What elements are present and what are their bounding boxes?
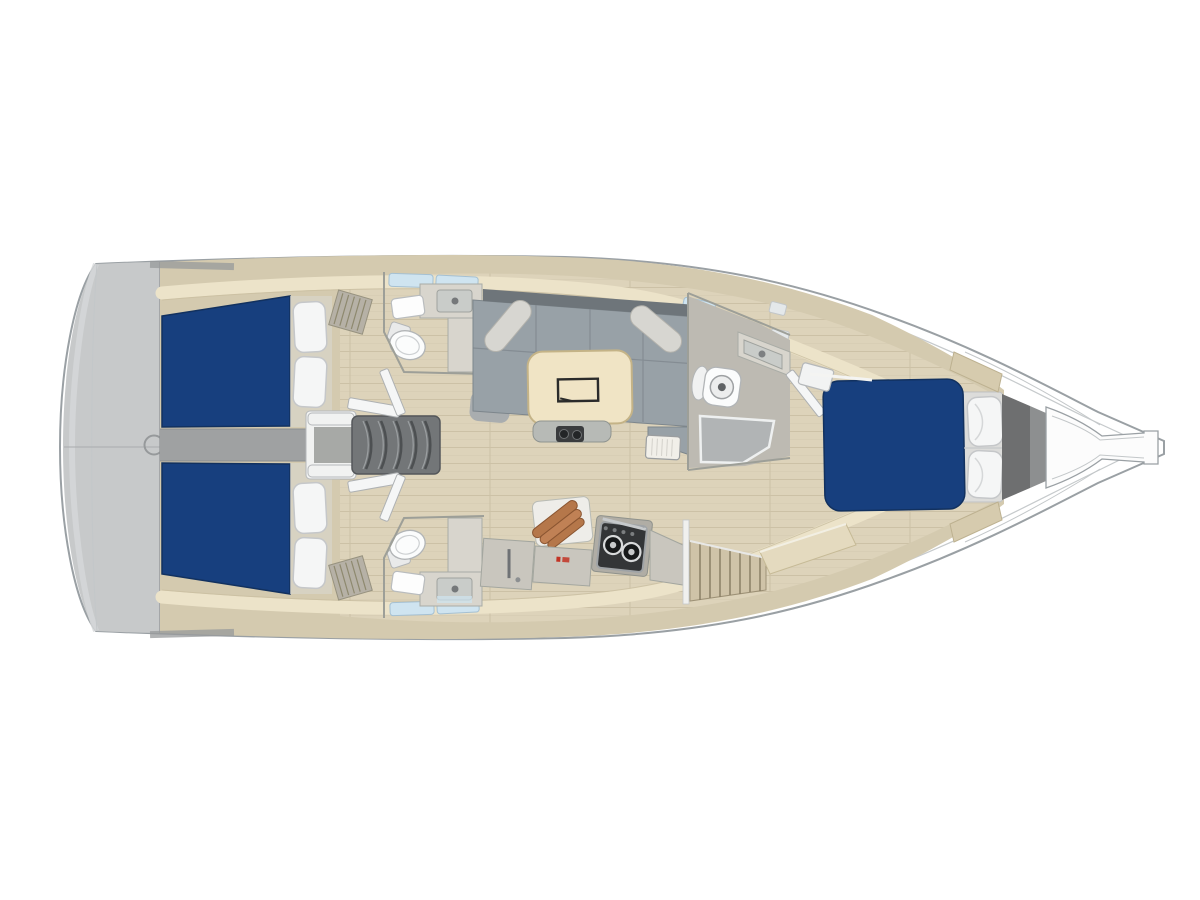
pillow	[293, 301, 328, 353]
red-label	[562, 557, 569, 562]
anchor-locker	[1002, 394, 1030, 500]
pillow	[967, 450, 1003, 499]
yacht-floorplan	[0, 0, 1200, 900]
counter-return	[448, 518, 482, 572]
mirror-hatch	[391, 295, 425, 319]
pillow	[967, 396, 1004, 447]
bench-knob	[573, 431, 582, 440]
companionway-steps	[352, 416, 440, 474]
drain-icon	[452, 298, 459, 305]
floor-hatch	[645, 435, 680, 460]
stern-platform	[63, 262, 164, 633]
mirror-hatch	[391, 571, 425, 595]
red-label	[556, 557, 560, 562]
engine-corridor	[160, 429, 308, 461]
pillow	[293, 537, 328, 589]
island-berth-mattress	[823, 379, 965, 511]
drain-icon	[452, 586, 459, 593]
entry-rail-bottom	[308, 465, 354, 477]
pillow	[293, 356, 328, 408]
galley-front-panel	[533, 546, 592, 586]
galley-cabinet	[480, 538, 534, 589]
berth-mattress	[162, 296, 290, 427]
basin-water	[437, 596, 472, 603]
bench-knob	[560, 430, 569, 439]
floorplan-canvas	[0, 0, 1200, 900]
berth-mattress	[162, 463, 290, 594]
stove	[591, 515, 653, 577]
pillow	[293, 482, 328, 534]
entry-sill	[314, 427, 352, 463]
wardrobe-divider	[683, 520, 689, 604]
entry-rail-top	[308, 413, 354, 425]
cabinet-handle	[507, 549, 511, 578]
drain-icon	[759, 351, 766, 358]
dining-table	[527, 350, 632, 425]
